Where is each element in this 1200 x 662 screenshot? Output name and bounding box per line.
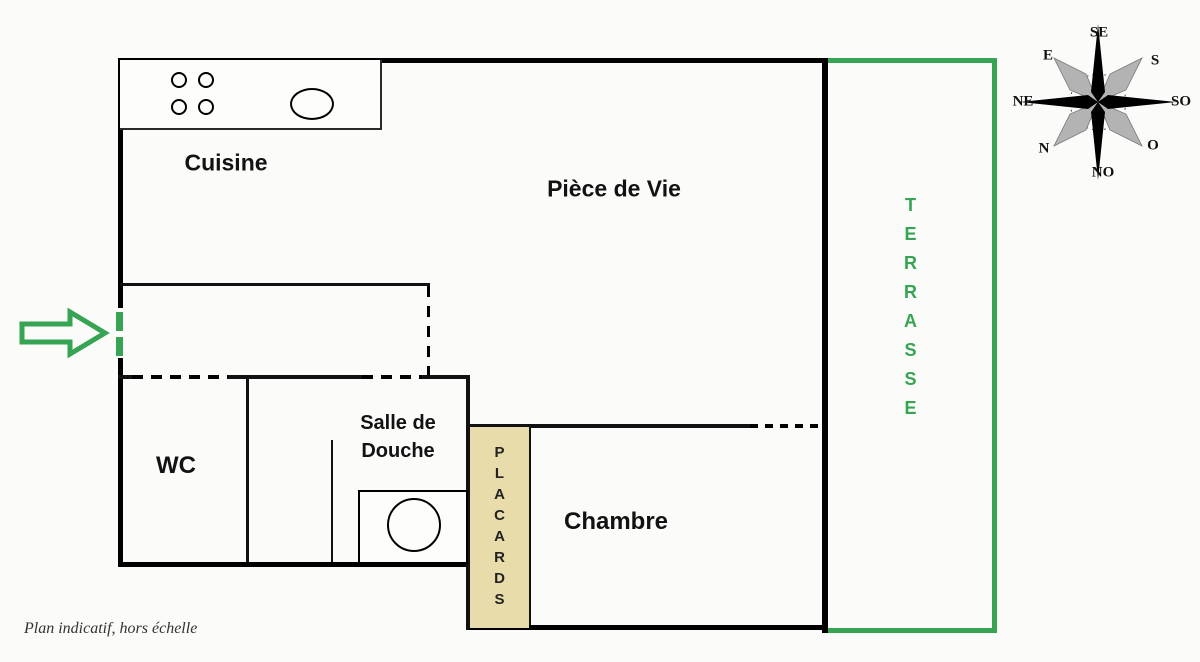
terrasse-label: TERRASSE (900, 195, 921, 427)
shower-drain-icon (387, 498, 441, 552)
door-wc-dashed (132, 375, 228, 379)
wall-shower-screen (331, 440, 333, 562)
wall-hall-bottom-stub (118, 375, 132, 379)
door-douche-dashed (362, 375, 422, 379)
hob-burner-icon (198, 99, 214, 115)
room-label-chambre: Chambre (564, 508, 668, 536)
compass-label-n: N (1039, 141, 1050, 158)
compass-label-no: NO (1092, 165, 1115, 182)
opening-hall-living-dashed (427, 286, 430, 375)
footnote: Plan indicatif, hors échelle (24, 620, 197, 638)
wall-cuisine-bottom (120, 283, 430, 286)
placards-closet: PLACARDS (470, 427, 529, 628)
room-label-salle-de-douche: Salle de Douche (348, 409, 448, 465)
placards-label: PLACARDS (491, 444, 508, 612)
compass-label-s: S (1151, 53, 1159, 70)
terrasse-area: TERRASSE (828, 58, 997, 633)
floor-plan: PLACARDS TERRASSE Cuisine Pièce de Vie W… (0, 0, 1200, 662)
wall-placards-right (529, 427, 531, 625)
hob-burner-icon (171, 99, 187, 115)
hob-burner-icon (198, 72, 214, 88)
wall-wc-partition (246, 379, 249, 562)
room-label-wc: WC (156, 452, 196, 480)
wall-hall-bottom-right (422, 375, 470, 379)
wall-left-lower (118, 358, 123, 567)
compass-label-so: SO (1171, 94, 1191, 111)
sink-icon (290, 88, 334, 120)
kitchen-counter (120, 60, 382, 130)
room-label-cuisine: Cuisine (184, 150, 267, 177)
compass-label-e: E (1043, 48, 1053, 65)
room-label-piece-de-vie: Pièce de Vie (547, 176, 681, 203)
entrance-door-dashed (116, 312, 123, 358)
hob-burner-icon (171, 72, 187, 88)
compass-label-o: O (1147, 138, 1159, 155)
compass-label-se: SE (1090, 25, 1108, 42)
entrance-arrow-icon (18, 308, 110, 358)
door-chambre-dashed (750, 424, 822, 428)
compass-label-ne: NE (1013, 94, 1034, 111)
shower-tray (358, 490, 468, 564)
